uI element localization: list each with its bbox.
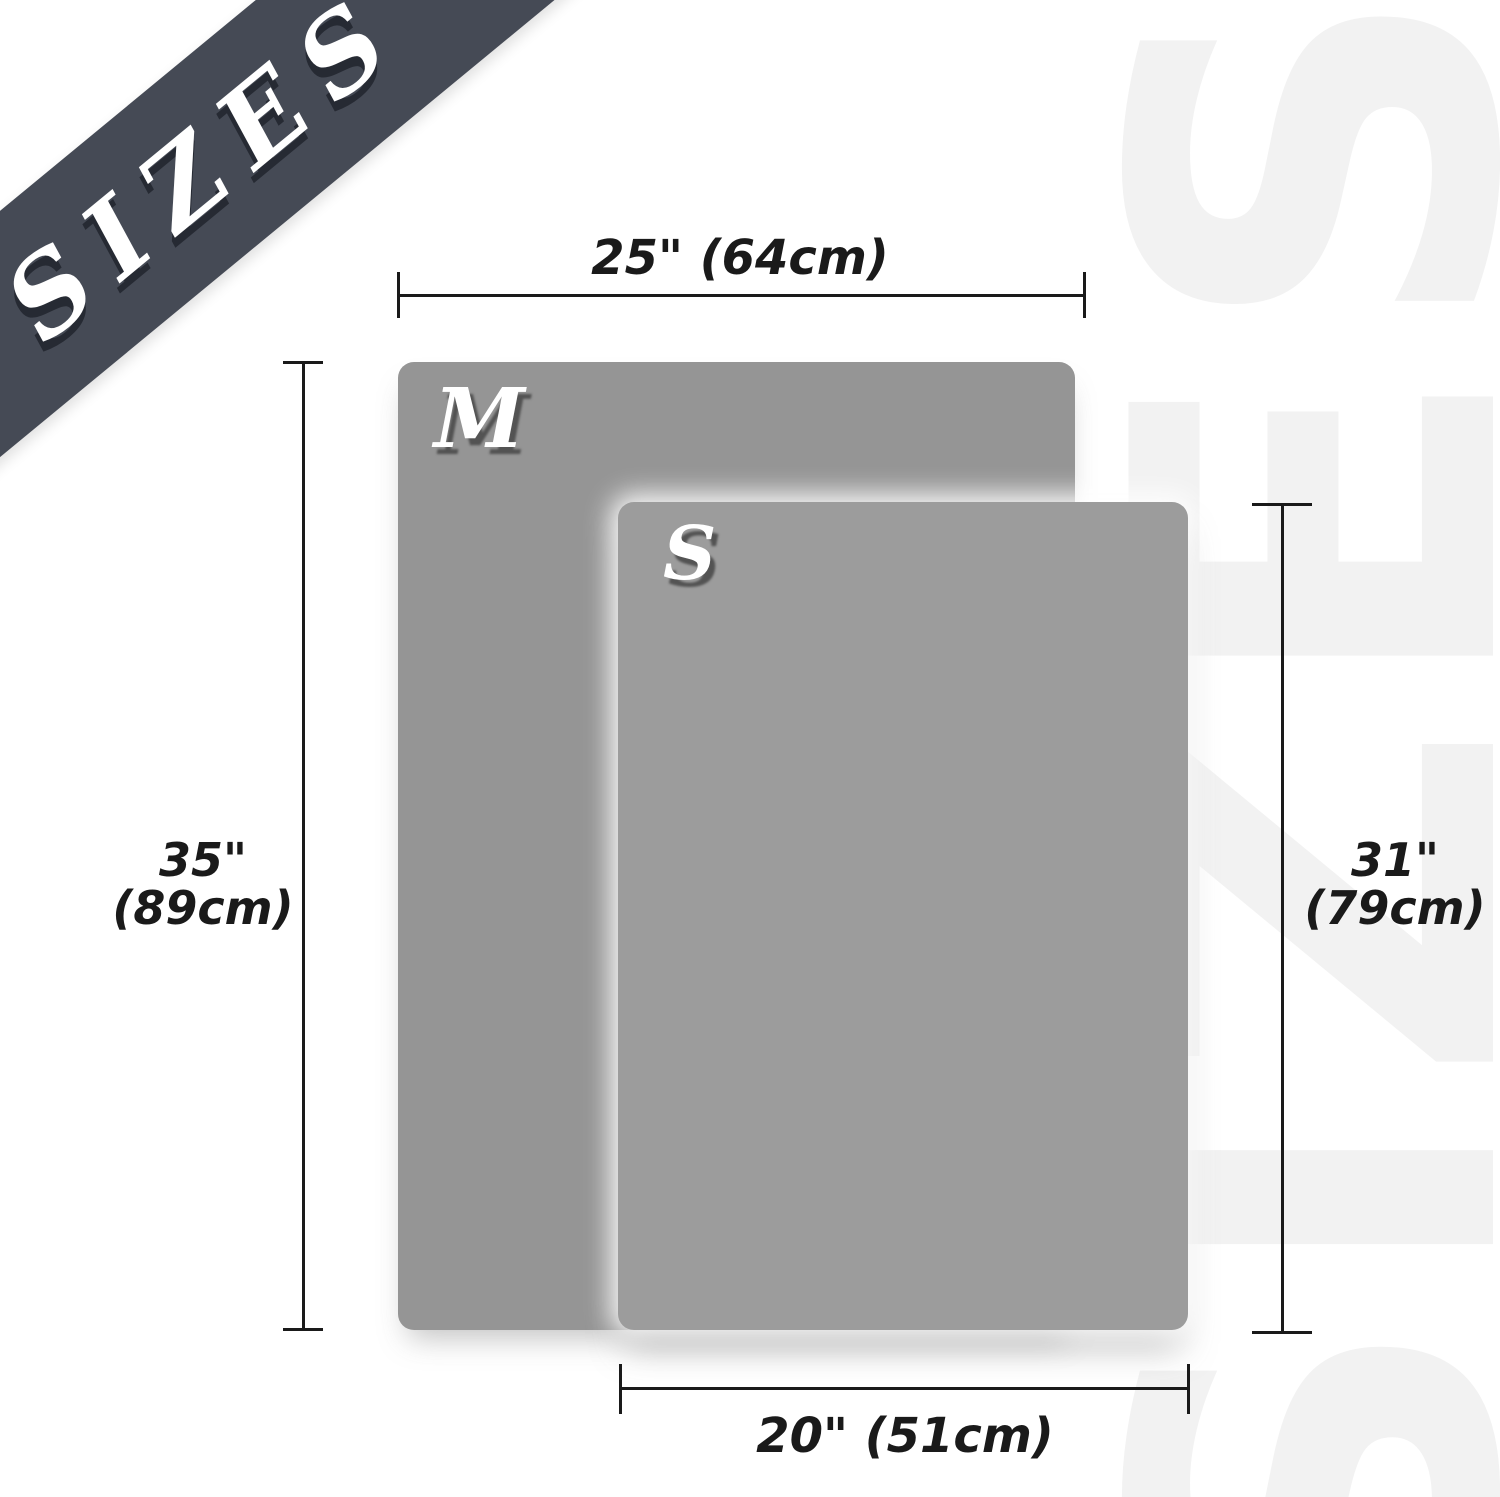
dim-s-width-tick-left — [619, 1364, 622, 1414]
dim-m-height-tick-bottom — [283, 1328, 323, 1331]
dim-s-height-label-cm: (79cm) — [1295, 884, 1495, 932]
dim-m-width-tick-right — [1083, 272, 1086, 318]
sizes-banner-label: SIZES — [0, 0, 423, 358]
dim-s-height-tick-bottom — [1252, 1331, 1312, 1334]
size-s-letter: S — [663, 517, 716, 591]
dim-s-width-label: 20" (51cm) — [705, 1412, 1105, 1460]
dim-s-height-label-inches: 31" — [1295, 836, 1495, 884]
size-m-letter: M — [434, 378, 525, 460]
dim-m-height-tick-top — [283, 361, 323, 364]
dim-s-width-line — [620, 1387, 1190, 1390]
dim-m-height-label: 35" (89cm) — [103, 836, 303, 933]
dim-s-height-label: 31" (79cm) — [1295, 836, 1495, 933]
dim-m-width-line — [398, 294, 1085, 297]
dim-m-width-label: 25" (64cm) — [540, 234, 940, 282]
size-chart-infographic: SIZES M S 25" (64cm) 35" (89cm) 31" (79c… — [0, 0, 1500, 1497]
dim-s-height-tick-top — [1252, 503, 1312, 506]
size-s-rectangle: S — [618, 502, 1188, 1330]
dim-m-height-label-inches: 35" — [103, 836, 303, 884]
dim-s-height-line — [1281, 504, 1284, 1332]
dim-m-width-tick-left — [397, 272, 400, 318]
dim-s-width-tick-right — [1187, 1364, 1190, 1414]
dim-m-height-line — [302, 362, 305, 1330]
dim-m-height-label-cm: (89cm) — [103, 884, 303, 932]
